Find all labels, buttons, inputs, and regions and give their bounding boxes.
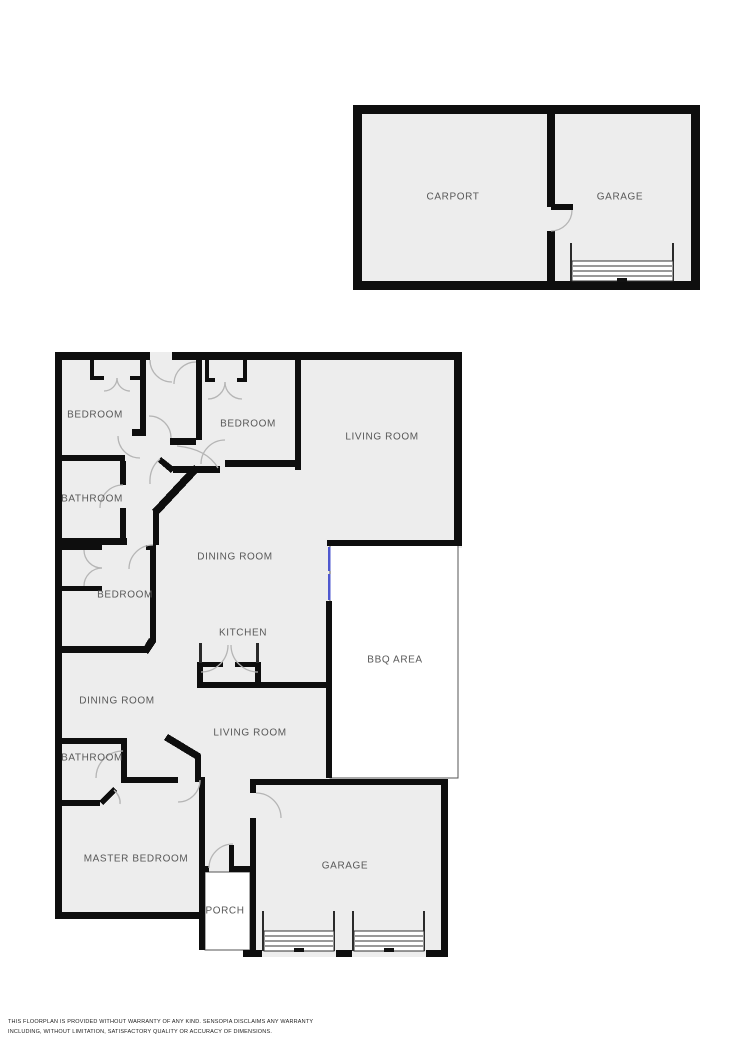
room-label-bathroom-2: BATHROOM xyxy=(61,753,123,764)
floorplan-page: CARPORT GARAGE BEDROOM BEDROOM LIVING RO… xyxy=(0,0,750,1060)
room-label-master-bedroom: MASTER BEDROOM xyxy=(84,854,189,865)
disclaimer-line-2: INCLUDING, WITHOUT LIMITATION, SATISFACT… xyxy=(8,1027,313,1037)
room-label-living-room-2: LIVING ROOM xyxy=(213,728,286,739)
room-label-dining-room-2: DINING ROOM xyxy=(79,696,155,707)
room-label-kitchen: KITCHEN xyxy=(219,628,267,639)
disclaimer-line-1: THIS FLOORPLAN IS PROVIDED WITHOUT WARRA… xyxy=(8,1017,313,1027)
floor-fills xyxy=(55,109,696,957)
room-label-bedroom-1: BEDROOM xyxy=(67,410,123,421)
room-label-bedroom-3: BEDROOM xyxy=(97,590,153,601)
disclaimer-text: THIS FLOORPLAN IS PROVIDED WITHOUT WARRA… xyxy=(8,1017,313,1037)
room-label-bedroom-2: BEDROOM xyxy=(220,419,276,430)
room-label-living-room-1: LIVING ROOM xyxy=(345,432,418,443)
room-label-garage-upper: GARAGE xyxy=(597,192,643,203)
room-label-bathroom-1: BATHROOM xyxy=(61,494,123,505)
room-label-carport: CARPORT xyxy=(427,192,480,203)
room-label-garage-main: GARAGE xyxy=(322,861,368,872)
room-label-bbq-area: BBQ AREA xyxy=(367,655,422,666)
room-label-dining-room-1: DINING ROOM xyxy=(197,552,273,563)
floorplan-drawing xyxy=(0,0,750,1060)
room-label-porch: PORCH xyxy=(205,906,244,917)
